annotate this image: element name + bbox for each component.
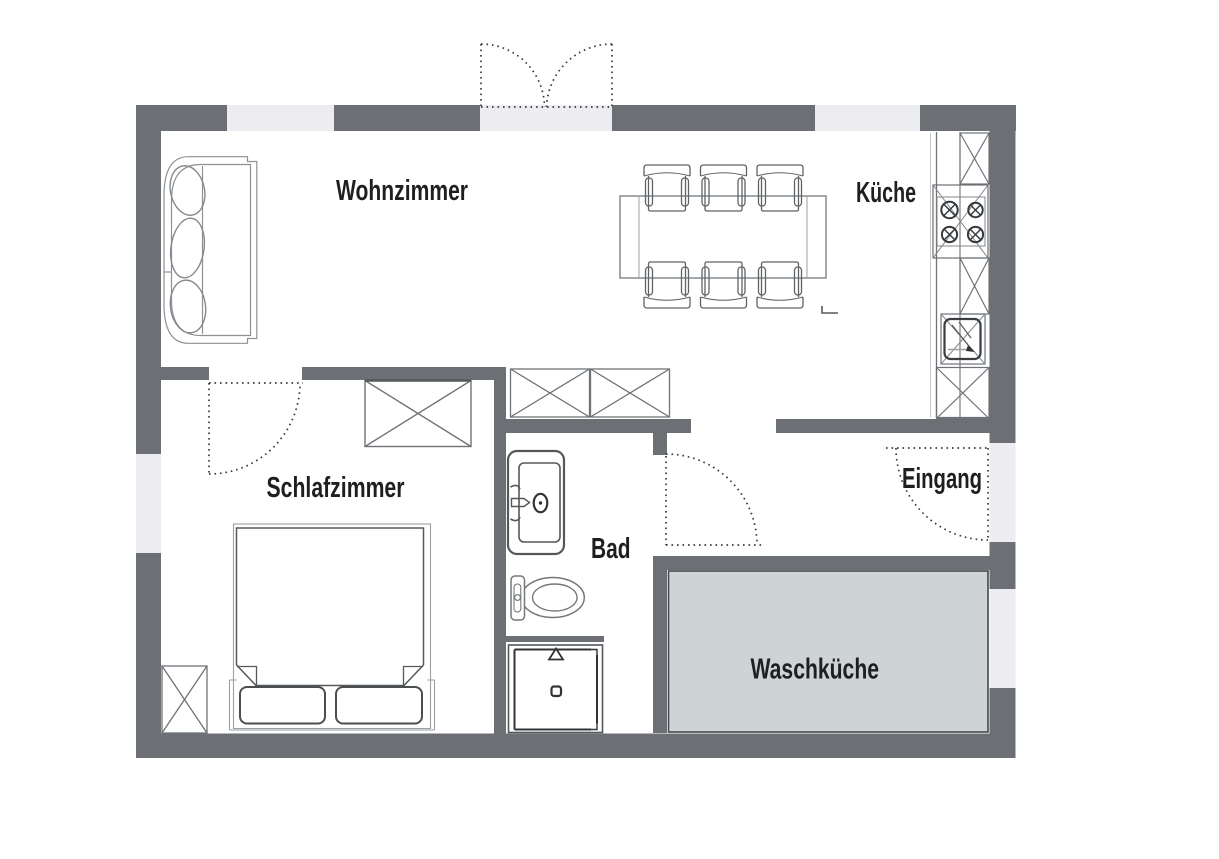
svg-text:Wohnzimmer: Wohnzimmer xyxy=(336,175,468,207)
svg-text:Bad: Bad xyxy=(591,533,631,565)
svg-text:Eingang: Eingang xyxy=(902,463,982,495)
svg-text:Waschküche: Waschküche xyxy=(751,654,880,686)
svg-text:Schlafzimmer: Schlafzimmer xyxy=(267,472,405,504)
svg-text:Küche: Küche xyxy=(856,177,916,209)
